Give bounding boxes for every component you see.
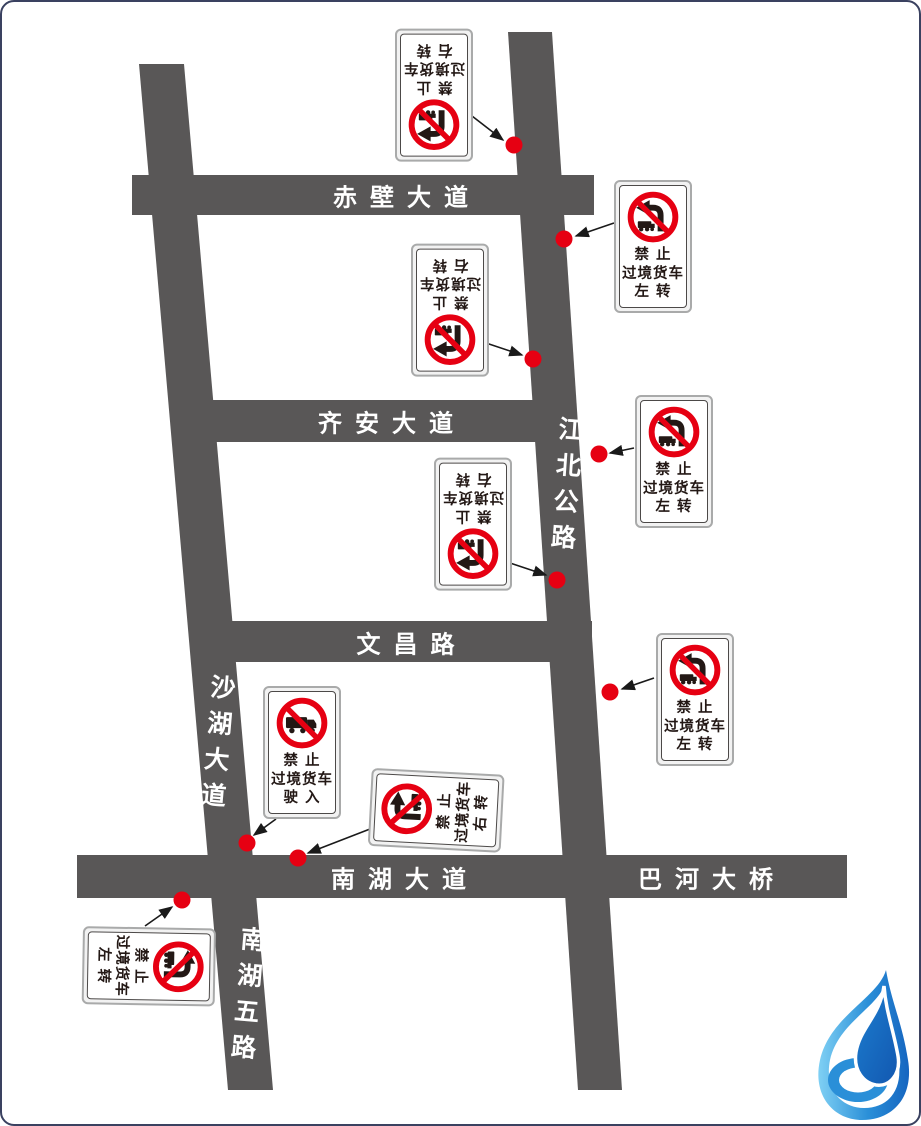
sign-line: 禁 止 [441,506,505,525]
sign-line: 禁 止 [270,752,334,771]
sign-line: 过境货车 [663,718,727,737]
sign-line: 禁 止 [621,246,685,265]
no-left-turn-truck-icon [626,190,680,244]
no-truck-entry-icon [275,696,329,750]
sign-line: 过境货车 [402,59,466,78]
sign-line: 过境货车 [441,488,505,507]
location-dot [602,684,619,701]
location-dot [525,351,542,368]
pointer-arrow [622,678,654,689]
pointer-arrow [472,116,503,140]
sign-line: 左 转 [93,933,113,997]
sign-line: 过境货车 [642,480,706,499]
sign-line: 过境货车 [112,934,132,998]
road-shape-wenchang [202,621,592,662]
pointer-arrow [254,819,276,835]
pointer-arrow [486,343,522,355]
sign-no-left-turn-transit-trucks-1: 禁 止 过境货车 左 转 [614,180,692,313]
sign-no-right-turn-transit-trucks-2: 禁 止 过境货车 右 转 [411,244,489,377]
road-shape-chibi [132,175,594,215]
location-dot [591,446,608,463]
water-drop-logo [800,964,921,1122]
sign-line: 过境货车 [418,274,482,293]
sign-line: 右 转 [441,469,505,488]
location-dot [506,137,523,154]
sign-line: 禁 止 [642,461,706,480]
sign-no-right-turn-transit-trucks-3: 禁 止 过境货车 右 转 [434,458,512,591]
no-left-turn-truck-icon [668,643,722,697]
sign-no-left-turn-transit-trucks-3: 禁 止 过境货车 左 转 [656,633,734,766]
sign-no-left-turn-transit-trucks-2: 禁 止 过境货车 左 转 [635,395,713,528]
road-shape-nanhu-bahe [77,855,847,898]
location-dot [239,835,256,852]
sign-no-right-turn-transit-trucks-4: 禁 止 过境货车 右 转 [368,768,505,853]
pointer-arrow [610,448,634,453]
sign-line: 过境货车 [621,265,685,284]
no-right-turn-truck-icon [407,98,461,152]
location-dot [556,231,573,248]
location-dot [549,572,566,589]
sign-no-right-turn-transit-trucks-1: 禁 止 过境货车 右 转 [395,29,473,162]
sign-line: 禁 止 [130,934,150,998]
road-map-canvas: 赤壁大道 齐安大道 文昌路 南湖大道 巴河大桥 江北公路 沙湖大道 南湖五路 禁… [0,0,921,1126]
sign-line: 左 转 [663,736,727,755]
pointer-arrow [308,829,370,853]
sign-line: 右 转 [402,40,466,59]
sign-line: 左 转 [621,283,685,302]
no-left-turn-truck-icon [151,939,206,994]
road-shape-qian [174,400,574,442]
pointer-arrow [576,223,614,236]
sign-line: 右 转 [471,780,493,845]
location-dot [290,850,307,867]
sign-line: 左 转 [642,498,706,517]
no-right-turn-truck-icon [423,313,477,367]
sign-line: 过境货车 [270,771,334,790]
sign-line: 禁 止 [663,699,727,718]
sign-line: 禁 止 [402,77,466,96]
location-dot [174,892,191,909]
sign-line: 右 转 [418,255,482,274]
sign-no-left-turn-transit-trucks-4: 禁 止 过境货车 左 转 [82,926,216,1006]
no-left-turn-truck-icon [647,405,701,459]
pointer-arrow [145,907,172,926]
sign-line: 驶 入 [270,789,334,808]
sign-line: 过境货车 [453,779,475,844]
no-right-turn-truck-icon [446,527,500,581]
pointer-arrow [510,563,546,575]
sign-line: 禁 止 [418,292,482,311]
no-right-turn-truck-icon [378,780,435,837]
sign-no-entry-transit-trucks: 禁 止 过境货车 驶 入 [263,686,341,819]
